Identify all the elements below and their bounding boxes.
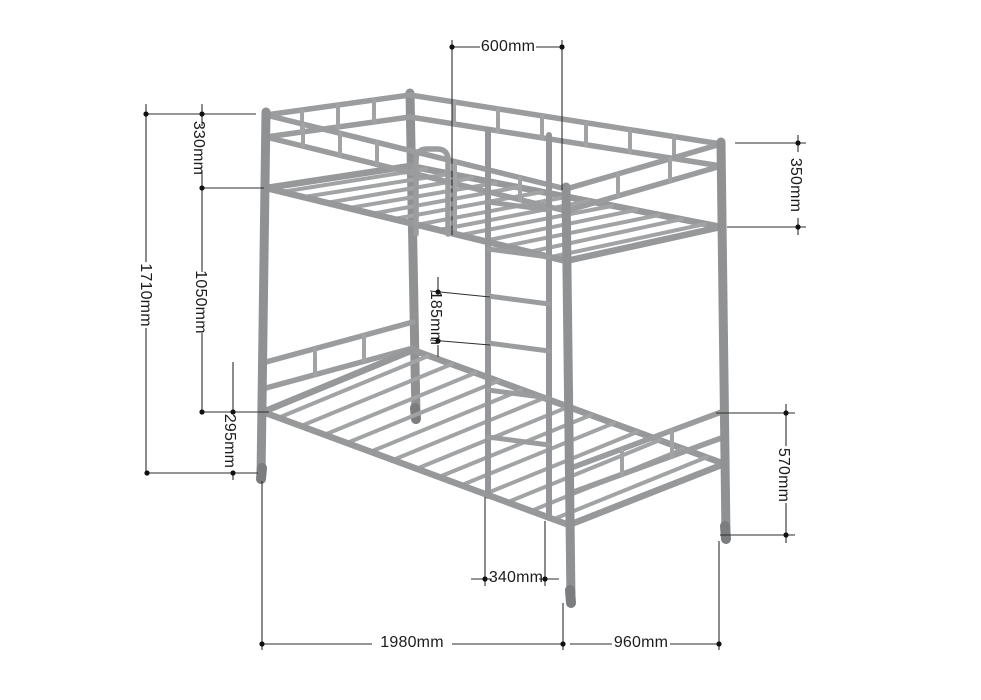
dimension-diagram: 600mm 330mm 1710mm 1050mm 295mm 350mm 18… — [0, 0, 981, 700]
dim-label-350mm: 350mm — [787, 158, 803, 212]
dim-label-1980mm: 1980mm — [380, 635, 443, 651]
bed-frame-art — [261, 93, 726, 603]
dim-label-570mm: 570mm — [775, 448, 791, 502]
dimension-lines — [143, 40, 806, 650]
dim-label-1710mm: 1710mm — [137, 263, 153, 326]
dim-label-960mm: 960mm — [614, 635, 668, 651]
dim-label-1050mm: 1050mm — [192, 270, 208, 333]
dim-label-330mm: 330mm — [190, 121, 206, 175]
dim-label-185mm: 185mm — [427, 291, 443, 345]
dim-label-340mm: 340mm — [489, 570, 543, 586]
dim-label-295mm: 295mm — [221, 414, 237, 468]
bunk-bed-drawing — [0, 0, 981, 700]
dim-label-600mm: 600mm — [481, 39, 535, 55]
